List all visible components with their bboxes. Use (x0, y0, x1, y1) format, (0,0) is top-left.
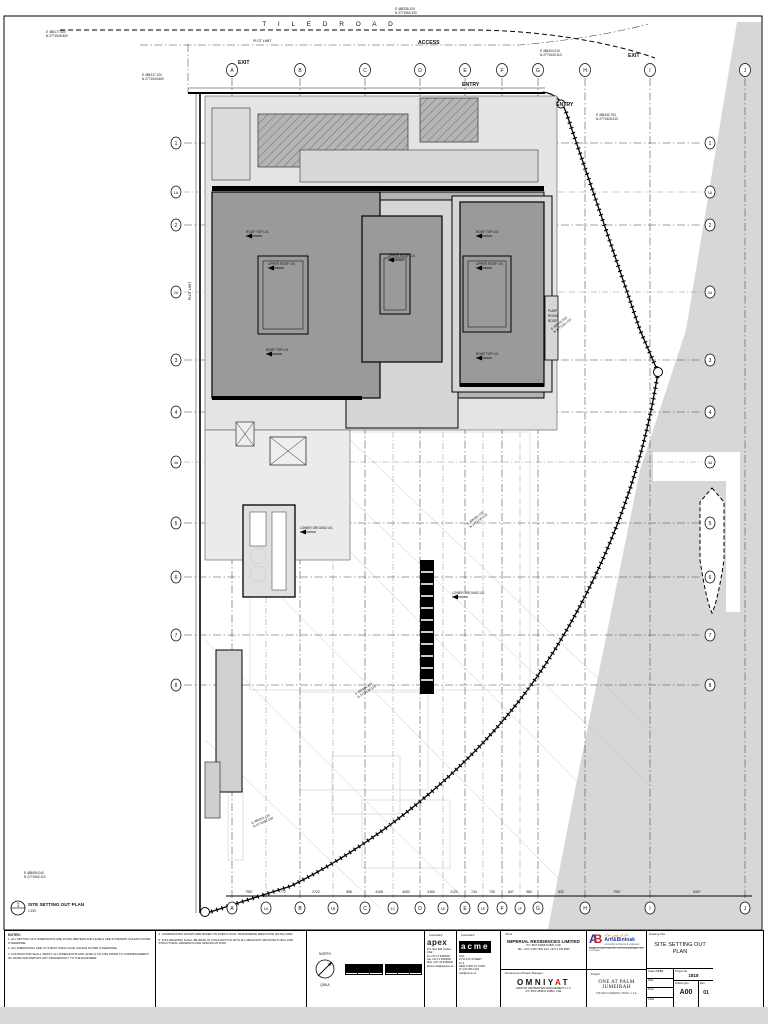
svg-text:4: 4 (709, 410, 712, 416)
core-east (463, 256, 511, 332)
architect-cell: AB عارف وبن توك Arif&Bintoak consulting … (587, 931, 646, 970)
svg-text:1D: 1D (441, 907, 446, 911)
svg-text:1B: 1B (331, 907, 336, 911)
apex-logo: apex (427, 938, 454, 948)
svg-text:3160: 3160 (427, 890, 435, 894)
svg-text:1A: 1A (264, 907, 269, 911)
svg-text:H: H (583, 906, 587, 912)
exit-label-2: EXIT (628, 53, 640, 59)
title-block: NOTES: 1. ALL SETTING OUT DIMENSIONS ARE… (4, 930, 764, 1008)
client-and-pm: Client IMPERIAL RESIDENCES LIMITED P.O. … (501, 931, 587, 1007)
svg-text:8: 8 (709, 683, 712, 689)
pm-cell: Development Project Manager OMNIYAT OMNI… (501, 970, 586, 1008)
drawing-title-cell: Drawing Title SITE SETTING OUT PLAN Scal… (647, 931, 713, 1007)
project-cell: Project ONE AT PALM JUMEIRAH THE PALM JU… (587, 970, 646, 1008)
arif-bintoak-logo: AB (589, 933, 602, 945)
note-item: 3. CONTRACTOR SHALL VERIFY ALL DIMENSION… (8, 953, 152, 960)
architect-and-project: AB عارف وبن توك Arif&Bintoak consulting … (587, 931, 647, 1007)
svg-text:3: 3 (175, 358, 178, 364)
entry-label-1: ENTRY (462, 82, 480, 88)
drawing-sheet: T I L E D R O A D PLOT LIMIT PLOT LIMIT (0, 0, 768, 1024)
svg-text:1: 1 (17, 903, 20, 909)
svg-text:1A: 1A (708, 191, 713, 195)
view-title: 1 SITE SETTING OUT PLAN 1:150 (11, 901, 85, 915)
tiled-road: T I L E D R O A D PLOT LIMIT (60, 21, 655, 58)
svg-text:N 2771062.110: N 2771062.110 (24, 875, 46, 879)
svg-text:UPPER ROOF LVL: UPPER ROOF LVL (268, 262, 296, 266)
svg-text:N 2771528.310: N 2771528.310 (596, 117, 618, 121)
drawing-number: A00 (675, 989, 697, 996)
revision-table-1 (345, 964, 383, 975)
client-cell: Client IMPERIAL RESIDENCES LIMITED P.O. … (501, 931, 586, 970)
svg-text:4108: 4108 (375, 890, 383, 894)
note-item: 2. ALL DIMENSIONS ARE TO STRUCTURAL FACE… (8, 947, 152, 951)
grid-bubbles-left: 1 1A 2 2A 3 4 4A 5 6 7 8 (171, 137, 181, 691)
svg-text:6: 6 (709, 575, 712, 581)
sheet-bottom-margin (0, 1007, 768, 1024)
core-center (380, 254, 410, 314)
svg-text:4A: 4A (174, 461, 179, 465)
exit-label-1: EXIT (238, 60, 250, 66)
svg-text:5407: 5407 (693, 890, 701, 894)
svg-text:2A: 2A (174, 291, 179, 295)
plot-limit-side-label: PLOT LIMIT (188, 282, 192, 300)
svg-text:744: 744 (471, 890, 477, 894)
svg-text:N 2771549.800: N 2771549.800 (46, 34, 68, 38)
svg-text:ROOF TOP LVL: ROOF TOP LVL (476, 230, 499, 234)
north-and-revisions: NORTH QIBLA (307, 931, 425, 1007)
svg-text:LOWER GROUND LVL: LOWER GROUND LVL (452, 591, 485, 595)
svg-text:5: 5 (709, 521, 712, 527)
svg-text:980: 980 (526, 890, 532, 894)
svg-text:772: 772 (280, 890, 286, 894)
svg-text:D: D (418, 68, 422, 74)
svg-text:ROOF TOP LVL: ROOF TOP LVL (246, 230, 269, 234)
road-label: T I L E D R O A D (262, 21, 398, 28)
project-name: ONE AT PALM JUMEIRAH (589, 980, 644, 990)
svg-text:2A: 2A (708, 291, 713, 295)
svg-text:F: F (500, 68, 503, 74)
access-label: ACCESS (418, 40, 440, 46)
view-title-text: SITE SETTING OUT PLAN (28, 902, 85, 907)
grid-bubbles-top: A B C D E F G H I J (227, 64, 751, 77)
svg-text:7: 7 (175, 633, 178, 639)
svg-text:6: 6 (175, 575, 178, 581)
svg-text:832: 832 (558, 890, 564, 894)
svg-text:2: 2 (175, 223, 178, 229)
svg-text:7967: 7967 (613, 890, 621, 894)
note-item: 1. ALL SETTING OUT DIMENSIONS ARE IN MIL… (8, 938, 152, 945)
notes-panel: NOTES: 1. ALL SETTING OUT DIMENSIONS ARE… (5, 931, 307, 1007)
svg-text:LOWER GROUND LVL: LOWER GROUND LVL (300, 526, 333, 530)
site-plan-canvas: T I L E D R O A D PLOT LIMIT PLOT LIMIT (0, 0, 768, 930)
svg-text:4: 4 (175, 410, 178, 416)
acme-logo: acme (459, 941, 491, 953)
svg-text:ROOM: ROOM (548, 314, 558, 318)
project-number: 1818 (675, 973, 712, 978)
svg-text:C: C (363, 906, 367, 912)
north-compass-icon (312, 956, 338, 982)
entry-label-2: ENTRY (556, 102, 574, 108)
consultant-apex: Consultant apex P.O. Box 966, Dubai, UAE… (425, 931, 457, 1007)
svg-text:C: C (363, 68, 367, 74)
svg-text:ROOF TOP LVL: ROOF TOP LVL (476, 352, 499, 356)
external-stair (420, 560, 434, 694)
svg-text:1: 1 (709, 141, 712, 147)
drawing-fields: Scale 1:150 Date Drwn Chkd Project No.18… (647, 969, 713, 1007)
svg-text:1A: 1A (174, 191, 179, 195)
drawing-title-text: SITE SETTING OUT PLAN (647, 942, 713, 957)
svg-text:I: I (649, 906, 650, 912)
revision-table-2 (385, 964, 423, 975)
svg-text:4052: 4052 (402, 890, 410, 894)
plot-limit-label: PLOT LIMIT (253, 39, 271, 43)
svg-text:N 2771543.600: N 2771543.600 (142, 77, 164, 81)
omniyat-logo: OMNIYAT (503, 978, 584, 987)
svg-text:1: 1 (175, 141, 178, 147)
svg-text:G: G (536, 906, 540, 912)
svg-text:2: 2 (709, 223, 712, 229)
svg-text:UPPER ROOF LVL: UPPER ROOF LVL (388, 254, 416, 258)
revision-number: 01 (700, 990, 712, 996)
qibla-label: QIBLA (307, 983, 343, 987)
scale-value: 1:150 (655, 969, 663, 973)
svg-text:4A: 4A (708, 461, 713, 465)
svg-text:I: I (649, 68, 650, 74)
svg-text:2722: 2722 (312, 890, 320, 894)
note-item: 4. COORDINATES SHOWN ARE BASED ON DUBAI … (159, 933, 304, 937)
building-towers (212, 186, 558, 428)
svg-text:N 2771549.110: N 2771549.110 (540, 53, 562, 57)
svg-text:847: 847 (508, 890, 514, 894)
svg-text:7: 7 (709, 633, 712, 639)
svg-text:1C: 1C (391, 907, 396, 911)
svg-text:G: G (536, 68, 540, 74)
note-item: 5. THIS DRAWING SHALL BE READ IN CONJUNC… (159, 939, 304, 946)
svg-text:H: H (583, 68, 587, 74)
svg-text:858: 858 (346, 890, 352, 894)
svg-text:F: F (500, 906, 503, 912)
svg-text:D: D (418, 906, 422, 912)
north-arrow: NORTH QIBLA (307, 952, 343, 987)
svg-text:N 2771560.330: N 2771560.330 (395, 11, 417, 15)
svg-text:5: 5 (175, 521, 178, 527)
pump-room-label: PUMP (548, 309, 557, 313)
svg-text:739: 739 (489, 890, 495, 894)
svg-text:1E: 1E (481, 907, 486, 911)
svg-text:2123: 2123 (450, 890, 458, 894)
svg-text:UPPER ROOF LVL: UPPER ROOF LVL (476, 262, 504, 266)
svg-text:8: 8 (175, 683, 178, 689)
svg-text:7967: 7967 (245, 890, 253, 894)
svg-text:3: 3 (709, 358, 712, 364)
water-area (548, 22, 761, 929)
revision-tables (343, 962, 424, 977)
consultant-acme: Consultant acme USA 31 W 27th STREET FL … (457, 931, 501, 1007)
svg-text:ROOF TOP LVL: ROOF TOP LVL (266, 348, 289, 352)
view-scale: 1:150 (28, 909, 36, 913)
